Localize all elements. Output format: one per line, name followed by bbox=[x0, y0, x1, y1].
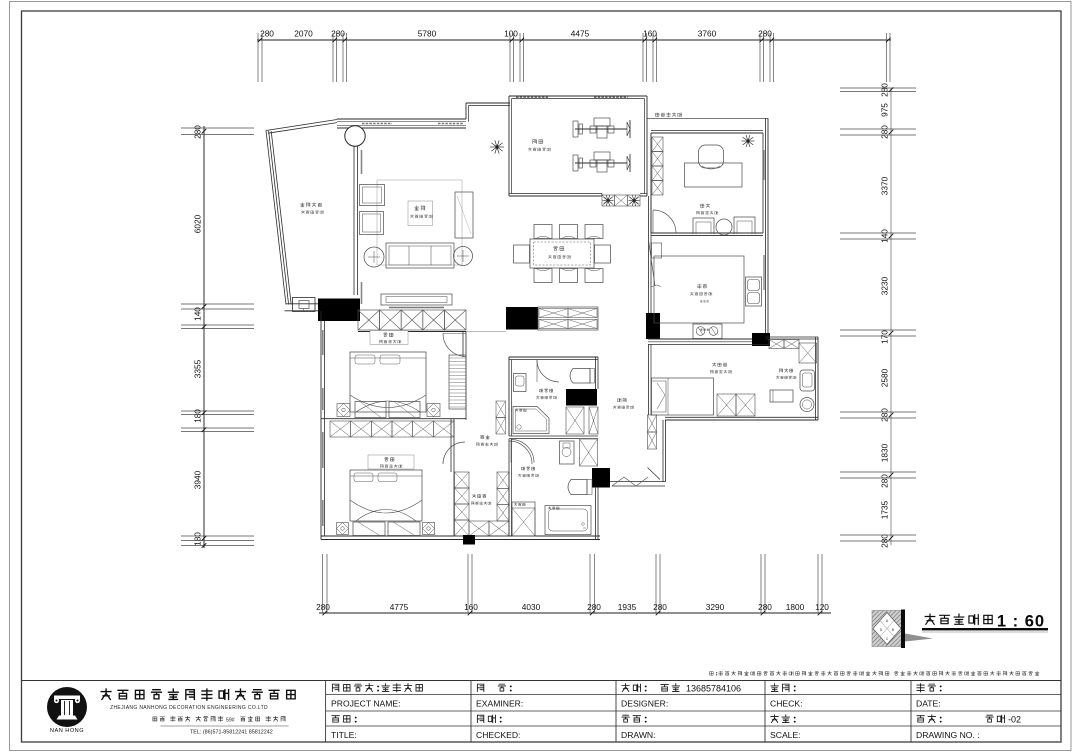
svg-text:TITLE:: TITLE: bbox=[331, 730, 357, 740]
svg-text:4030: 4030 bbox=[522, 602, 541, 612]
svg-text:3230: 3230 bbox=[880, 276, 890, 295]
svg-text:1735: 1735 bbox=[880, 500, 890, 519]
svg-text:59#: 59# bbox=[226, 718, 235, 724]
svg-text:-02: -02 bbox=[1008, 715, 1021, 725]
svg-text:5780: 5780 bbox=[418, 29, 437, 39]
svg-text:280: 280 bbox=[316, 602, 330, 612]
svg-text:160: 160 bbox=[643, 29, 657, 39]
svg-text:4475: 4475 bbox=[571, 29, 590, 39]
svg-text:140: 140 bbox=[880, 229, 890, 243]
svg-text:160: 160 bbox=[464, 602, 478, 612]
svg-text:NAN HONG: NAN HONG bbox=[50, 728, 84, 734]
svg-text:DRAWING NO. :: DRAWING NO. : bbox=[916, 730, 980, 740]
svg-text:280: 280 bbox=[880, 474, 890, 488]
svg-text:1830: 1830 bbox=[880, 443, 890, 462]
svg-text:100: 100 bbox=[504, 29, 518, 39]
svg-text:CHECK:: CHECK: bbox=[770, 699, 802, 709]
svg-text:1 : 60: 1 : 60 bbox=[997, 613, 1045, 631]
svg-text:EXAMINER:: EXAMINER: bbox=[476, 699, 523, 709]
svg-text:ZHEJIANG NANHONG DECORATION EN: ZHEJIANG NANHONG DECORATION ENGINEERING … bbox=[110, 705, 268, 711]
svg-text:180: 180 bbox=[193, 532, 203, 546]
svg-text:3370: 3370 bbox=[880, 176, 890, 195]
svg-text:DRAWN:: DRAWN: bbox=[621, 730, 656, 740]
svg-text:SCALE:: SCALE: bbox=[770, 730, 801, 740]
svg-text:1935: 1935 bbox=[618, 602, 637, 612]
svg-text:280: 280 bbox=[880, 83, 890, 97]
svg-text:DATE:: DATE: bbox=[916, 699, 941, 709]
svg-text:1800: 1800 bbox=[786, 602, 805, 612]
svg-text:3760: 3760 bbox=[698, 29, 717, 39]
svg-text:13685784106: 13685784106 bbox=[686, 684, 741, 694]
svg-text:6020: 6020 bbox=[193, 214, 203, 233]
svg-text:DESIGNER:: DESIGNER: bbox=[621, 699, 668, 709]
svg-text:280: 280 bbox=[880, 408, 890, 422]
svg-text:280: 280 bbox=[880, 125, 890, 139]
svg-text:TEL: (86)571-85812241 85: TEL: (86)571-85812241 85812242 bbox=[190, 730, 273, 736]
svg-text:975: 975 bbox=[880, 103, 890, 117]
svg-text:280: 280 bbox=[193, 125, 203, 139]
svg-text:4775: 4775 bbox=[390, 602, 409, 612]
svg-text:3940: 3940 bbox=[193, 470, 203, 489]
svg-text:3355: 3355 bbox=[193, 359, 203, 378]
svg-text:2580: 2580 bbox=[880, 368, 890, 387]
svg-text:170: 170 bbox=[880, 330, 890, 344]
svg-text:CHECKED:: CHECKED: bbox=[476, 730, 520, 740]
svg-text:PROJECT NAME:: PROJECT NAME: bbox=[331, 699, 401, 709]
svg-text:2070: 2070 bbox=[294, 29, 313, 39]
svg-text:3290: 3290 bbox=[706, 602, 725, 612]
